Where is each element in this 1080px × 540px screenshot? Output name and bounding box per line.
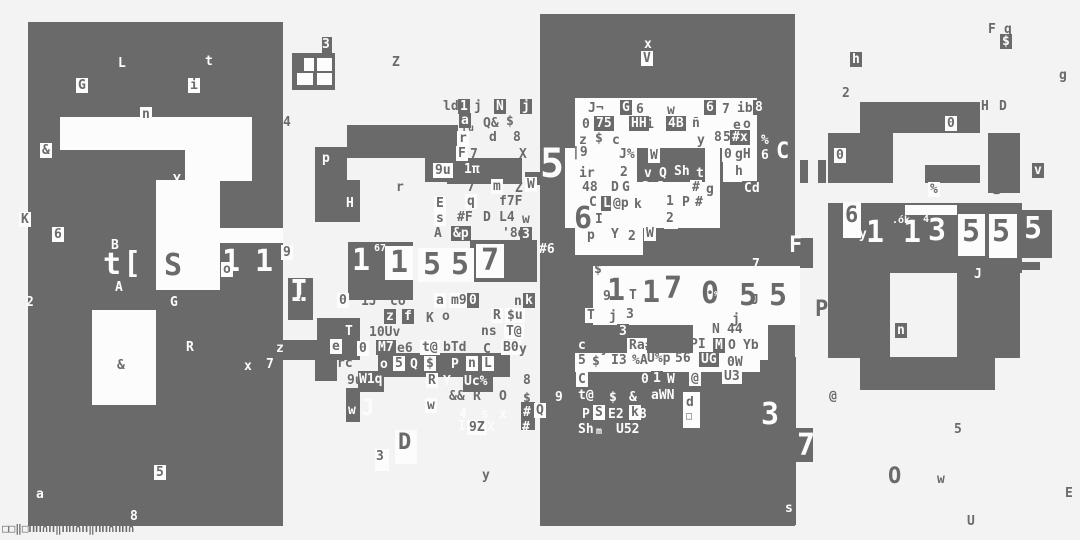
glyph: 5 bbox=[446, 248, 474, 282]
glyph: z bbox=[276, 342, 284, 355]
glyph: t bbox=[205, 55, 213, 68]
glyph: F bbox=[456, 146, 468, 161]
glyph: p bbox=[322, 152, 330, 165]
glyph: 2 bbox=[628, 230, 636, 243]
glyph: e6 bbox=[397, 342, 413, 355]
glitch-mosaic-canvas: LtGin&YK62Bt[S11o19AGI{a58x7&HTezRrc9uw3… bbox=[0, 0, 1080, 540]
glyph: o bbox=[380, 358, 388, 371]
glyph: $ bbox=[594, 263, 602, 276]
glyph: q bbox=[465, 194, 477, 209]
glyph: 1 bbox=[651, 371, 663, 386]
glyph: 7 bbox=[467, 181, 475, 194]
glyph: 5 bbox=[954, 423, 962, 436]
glyph: 5 bbox=[393, 356, 405, 371]
glyph: c bbox=[576, 338, 588, 353]
glyph: 2 bbox=[666, 212, 674, 225]
glyph: D bbox=[398, 432, 411, 454]
glyph: F bbox=[988, 23, 996, 36]
glyph: O bbox=[728, 339, 736, 352]
glyph: 2 bbox=[618, 165, 630, 180]
glyph: J bbox=[974, 268, 982, 281]
light-cutout bbox=[60, 117, 252, 150]
glyph: 0 bbox=[945, 116, 957, 131]
glyph: ld bbox=[443, 100, 459, 113]
glyph: 2 bbox=[642, 181, 650, 194]
glyph: % bbox=[928, 182, 940, 197]
glyph: Y bbox=[443, 375, 451, 388]
glyph: N bbox=[494, 99, 506, 114]
glyph: 8 bbox=[513, 131, 521, 144]
glyph: f bbox=[402, 309, 414, 324]
glyph: L bbox=[118, 57, 126, 70]
glyph: $ bbox=[592, 355, 600, 368]
glyph: D bbox=[999, 100, 1007, 113]
glyph: Y bbox=[173, 174, 181, 187]
glyph: v bbox=[644, 167, 652, 180]
dark-slab bbox=[893, 262, 955, 271]
glyph: 0 bbox=[357, 341, 369, 356]
glyph: i bbox=[188, 78, 200, 93]
glyph: 5 bbox=[764, 279, 792, 313]
glyph: 6 bbox=[845, 205, 858, 227]
glyph: 5 bbox=[418, 248, 446, 282]
glyph: w bbox=[425, 398, 437, 413]
glyph: G bbox=[498, 163, 506, 176]
glyph: O bbox=[888, 466, 901, 488]
glyph: w bbox=[522, 213, 530, 226]
glyph: □ bbox=[686, 412, 692, 422]
glyph: 1 bbox=[352, 246, 370, 276]
glyph: Yb bbox=[743, 339, 759, 352]
glyph: N bbox=[712, 323, 720, 336]
glyph: #x bbox=[730, 130, 750, 145]
glyph: Q bbox=[534, 403, 546, 418]
glyph: I bbox=[595, 213, 603, 226]
glyph: 7 bbox=[752, 258, 760, 271]
glyph: R bbox=[186, 341, 194, 354]
glyph: G bbox=[620, 180, 632, 195]
glyph: 0W bbox=[727, 356, 743, 369]
glyph: ñ bbox=[690, 116, 702, 131]
light-cutout bbox=[317, 73, 332, 85]
glyph: & bbox=[597, 327, 605, 340]
glyph: y bbox=[601, 342, 609, 355]
glyph: 5 bbox=[1024, 214, 1042, 244]
glyph: G bbox=[76, 78, 88, 93]
glyph: 9 bbox=[281, 245, 293, 260]
glyph: h bbox=[850, 52, 862, 67]
glyph: @p bbox=[611, 196, 631, 211]
glyph: 2 bbox=[842, 87, 850, 100]
glyph: 7 bbox=[664, 274, 682, 304]
glyph: s bbox=[434, 211, 446, 226]
glyph: Sh bbox=[674, 165, 690, 178]
glyph: h bbox=[735, 165, 743, 178]
glyph: B0 bbox=[501, 340, 521, 355]
glyph: 1J bbox=[361, 295, 377, 308]
glyph: 1 bbox=[191, 247, 209, 277]
glyph: V bbox=[641, 51, 653, 66]
glyph: E bbox=[1065, 487, 1073, 500]
glyph: 0 bbox=[722, 147, 734, 162]
glyph: 1π bbox=[464, 163, 480, 176]
dark-slab bbox=[315, 147, 347, 180]
glyph: UG bbox=[699, 352, 719, 367]
glyph: PI bbox=[690, 338, 706, 351]
glyph: Ra bbox=[627, 338, 647, 353]
glyph: J% bbox=[619, 148, 635, 161]
glyph: 8 bbox=[753, 100, 765, 115]
glyph: U bbox=[967, 515, 975, 528]
glyph: t bbox=[103, 250, 121, 280]
glyph: 3 bbox=[520, 227, 532, 242]
glyph: 0 bbox=[834, 148, 846, 163]
glyph: a bbox=[36, 488, 44, 501]
glyph: 6 bbox=[636, 103, 644, 116]
glyph: 3 bbox=[376, 450, 384, 463]
glyph: O bbox=[499, 390, 507, 403]
dark-slab bbox=[860, 102, 980, 133]
glyph: T bbox=[627, 288, 639, 303]
glyph: $ bbox=[609, 391, 617, 404]
glyph: f7F bbox=[499, 195, 522, 208]
glyph: Q& bbox=[483, 117, 499, 130]
glyph: # bbox=[690, 180, 702, 195]
glyph: 5 bbox=[576, 353, 588, 368]
glyph: 2m2 bbox=[639, 327, 657, 337]
glyph: y bbox=[697, 134, 705, 147]
dark-slab bbox=[828, 270, 890, 358]
glyph: @ bbox=[829, 390, 837, 403]
glyph: % bbox=[761, 134, 769, 147]
glyph: M7 bbox=[376, 340, 396, 355]
glyph: W1q bbox=[359, 373, 382, 386]
glyph: P bbox=[451, 358, 459, 371]
glyph: t@ bbox=[578, 389, 594, 402]
glyph: 6 bbox=[761, 149, 769, 162]
glyph: 6 bbox=[52, 227, 64, 242]
glyph: # bbox=[523, 406, 531, 419]
glyph: #F bbox=[457, 211, 473, 224]
glyph: □□‖□ΠΠ∩Π‖ΠΠ∩Π‖ΠΠ∩ΠΠ∩ bbox=[2, 523, 134, 534]
glyph: k bbox=[634, 198, 642, 211]
glyph: 3 bbox=[657, 181, 665, 194]
glyph: k bbox=[523, 293, 535, 308]
glyph: 2 bbox=[26, 296, 34, 309]
glyph: x bbox=[644, 38, 652, 51]
glyph: W bbox=[525, 177, 537, 192]
glyph: Q bbox=[410, 358, 418, 371]
glyph: G bbox=[620, 100, 632, 115]
glyph: 3 bbox=[322, 38, 330, 51]
glyph: Cd bbox=[742, 181, 762, 196]
glyph: co bbox=[390, 295, 406, 308]
glyph: G bbox=[170, 296, 178, 309]
glyph: aWN bbox=[651, 389, 674, 402]
glyph: 48 bbox=[582, 181, 598, 194]
glyph: 9Z bbox=[467, 420, 487, 435]
glyph: 1 bbox=[666, 195, 674, 208]
glyph: 6 bbox=[434, 148, 442, 161]
glyph: E2 bbox=[608, 408, 624, 421]
glyph: 1 bbox=[607, 276, 625, 306]
glyph: g bbox=[1059, 69, 1067, 82]
glyph: T@ bbox=[504, 324, 524, 339]
glyph: P bbox=[815, 299, 828, 321]
glyph: H bbox=[981, 100, 989, 113]
glyph: j bbox=[474, 100, 482, 113]
glyph: 56 bbox=[675, 352, 691, 365]
glyph: w bbox=[937, 473, 945, 486]
glyph: 7 bbox=[722, 103, 730, 116]
glyph: @1 bbox=[642, 196, 658, 209]
glyph: & bbox=[117, 359, 125, 372]
glyph: p bbox=[587, 229, 595, 242]
glyph: w bbox=[348, 404, 356, 417]
glyph: P bbox=[682, 196, 690, 209]
light-cutout bbox=[218, 228, 283, 243]
glyph: S bbox=[159, 249, 187, 283]
glyph: t@ bbox=[420, 340, 440, 355]
glyph: 0 bbox=[641, 373, 649, 386]
glyph: U bbox=[990, 177, 1003, 199]
glyph: m9 bbox=[449, 293, 469, 308]
glyph: U%p bbox=[647, 352, 670, 365]
glyph: Y bbox=[609, 227, 621, 242]
glyph: $ bbox=[424, 356, 436, 371]
dark-slab bbox=[315, 360, 337, 381]
glyph: 8 bbox=[523, 374, 531, 387]
glyph: 5 bbox=[154, 465, 166, 480]
glyph: R bbox=[426, 373, 438, 388]
glyph: Sh bbox=[578, 423, 594, 436]
glyph: 3 bbox=[624, 307, 636, 322]
glyph: 10Uv bbox=[369, 326, 400, 339]
glyph: s bbox=[785, 502, 793, 515]
glyph: X bbox=[519, 148, 527, 161]
light-cutout bbox=[317, 58, 332, 71]
glyph: S bbox=[593, 405, 605, 420]
glyph: & bbox=[629, 391, 637, 404]
glyph: { bbox=[298, 295, 304, 305]
glyph: vB bbox=[672, 326, 688, 339]
glyph: L bbox=[482, 356, 494, 371]
glyph: T bbox=[345, 325, 353, 338]
glyph: 1 bbox=[513, 246, 531, 276]
glyph: Uc% bbox=[464, 375, 487, 388]
glyph: I3 bbox=[609, 353, 629, 368]
glyph: e bbox=[330, 339, 342, 354]
glyph: D bbox=[483, 211, 491, 224]
glyph: C bbox=[776, 141, 789, 163]
glyph: 75 bbox=[594, 116, 614, 131]
glyph: $ bbox=[595, 132, 603, 145]
glyph: 8 bbox=[639, 408, 647, 421]
glyph: y bbox=[482, 469, 490, 482]
glyph: K bbox=[19, 212, 31, 227]
glyph: d bbox=[686, 396, 694, 409]
glyph: 4B bbox=[666, 116, 686, 131]
glyph: r bbox=[396, 181, 404, 194]
glyph: P bbox=[582, 408, 590, 421]
glyph: i bbox=[646, 118, 654, 131]
glyph: X bbox=[487, 421, 495, 434]
glyph: W bbox=[644, 226, 656, 241]
glyph: R bbox=[473, 390, 481, 403]
glyph: ib bbox=[737, 102, 753, 115]
glyph: 6 bbox=[704, 100, 716, 115]
glyph: c bbox=[612, 134, 620, 147]
glyph: A bbox=[434, 227, 442, 240]
glyph: n bbox=[466, 356, 478, 371]
glyph: o bbox=[442, 310, 450, 323]
glyph: T bbox=[585, 308, 597, 323]
glyph: &p bbox=[451, 226, 471, 241]
glyph: rc bbox=[337, 357, 353, 370]
glyph: R bbox=[491, 308, 503, 323]
glyph: U52 bbox=[616, 423, 639, 436]
glyph: K bbox=[426, 312, 434, 325]
glyph: #6 bbox=[539, 243, 555, 256]
glyph: & bbox=[40, 143, 52, 158]
glyph: %A bbox=[632, 354, 648, 367]
glyph: 9 bbox=[555, 391, 563, 404]
dark-slab bbox=[800, 160, 808, 183]
glyph: && bbox=[449, 390, 465, 403]
glyph: 44 bbox=[727, 323, 743, 336]
light-cutout bbox=[304, 58, 314, 71]
dark-slab bbox=[860, 357, 995, 390]
glyph: 9u bbox=[433, 163, 453, 178]
glyph: C bbox=[483, 343, 491, 356]
glyph: $u bbox=[505, 308, 525, 323]
glyph: y bbox=[519, 343, 527, 356]
glyph: gH bbox=[735, 148, 751, 161]
glyph: W bbox=[667, 373, 675, 386]
glyph: ns bbox=[481, 325, 497, 338]
glyph: J bbox=[751, 294, 759, 307]
glyph: 3 bbox=[761, 400, 779, 430]
glyph: bTd bbox=[443, 341, 466, 354]
glyph: D bbox=[611, 181, 619, 194]
glyph: @ bbox=[689, 371, 701, 386]
glyph: J bbox=[361, 398, 374, 420]
light-cutout bbox=[297, 73, 313, 85]
glyph: 1 bbox=[866, 218, 884, 248]
glyph: H bbox=[346, 197, 354, 210]
glyph: C bbox=[576, 372, 588, 387]
glyph: 0 bbox=[467, 293, 479, 308]
glyph: 5 bbox=[992, 217, 1010, 247]
glyph: n bbox=[514, 295, 522, 308]
glyph: I bbox=[458, 420, 466, 433]
glyph: # bbox=[693, 195, 705, 210]
glyph: n bbox=[895, 323, 907, 338]
glyph: W bbox=[648, 148, 660, 163]
glyph: 7 bbox=[797, 431, 815, 461]
glyph: a bbox=[434, 293, 446, 308]
glyph: E bbox=[434, 196, 446, 211]
glyph: L4 bbox=[499, 211, 515, 224]
glyph: 7 bbox=[264, 357, 276, 372]
glyph: o bbox=[221, 262, 233, 277]
glyph: v bbox=[1032, 163, 1044, 178]
glyph: t bbox=[696, 167, 704, 180]
glyph: # bbox=[522, 421, 530, 434]
glyph: 1 bbox=[255, 247, 273, 277]
glyph: m bbox=[491, 179, 503, 194]
glyph: 3 bbox=[928, 216, 946, 246]
glyph: [ bbox=[123, 249, 141, 279]
glyph: x bbox=[244, 360, 252, 373]
glyph: 1 bbox=[385, 246, 413, 280]
glyph: n bbox=[140, 107, 152, 122]
dark-slab bbox=[957, 272, 1020, 358]
glyph: d bbox=[489, 131, 497, 144]
glyph: 7 bbox=[476, 244, 504, 278]
glyph: M bbox=[713, 338, 725, 353]
glyph: 0 bbox=[582, 118, 590, 131]
glyph: $ bbox=[523, 392, 531, 405]
glyph: 4 bbox=[283, 116, 291, 129]
dark-slab bbox=[1022, 262, 1040, 270]
glyph: z bbox=[384, 309, 396, 324]
dark-slab bbox=[925, 165, 980, 183]
glyph: 5 bbox=[540, 144, 564, 184]
glyph: 7 bbox=[470, 148, 478, 161]
glyph: A bbox=[115, 281, 123, 294]
glyph: J¬ bbox=[588, 102, 604, 115]
glyph: 0 bbox=[337, 293, 349, 308]
glyph: x bbox=[499, 408, 507, 421]
glyph: g bbox=[706, 183, 714, 196]
dark-slab bbox=[818, 160, 826, 183]
glyph: 1 bbox=[642, 278, 660, 308]
glyph: % bbox=[714, 291, 720, 301]
glyph: 1 bbox=[458, 99, 470, 114]
glyph: 5 bbox=[962, 217, 980, 247]
glyph: Z bbox=[392, 56, 400, 69]
glyph: 1 bbox=[903, 218, 921, 248]
glyph: $ bbox=[1000, 34, 1012, 49]
light-cutout bbox=[185, 148, 252, 181]
glyph: |9 bbox=[572, 146, 588, 159]
glyph: ir bbox=[579, 167, 595, 180]
glyph: Q bbox=[659, 167, 667, 180]
glyph: j bbox=[520, 99, 532, 114]
glyph: U3 bbox=[722, 369, 742, 384]
glyph: r bbox=[457, 131, 469, 146]
glyph: $ bbox=[506, 115, 514, 128]
glyph: m bbox=[596, 427, 602, 437]
glyph: F bbox=[789, 235, 802, 257]
dark-slab bbox=[447, 158, 522, 184]
